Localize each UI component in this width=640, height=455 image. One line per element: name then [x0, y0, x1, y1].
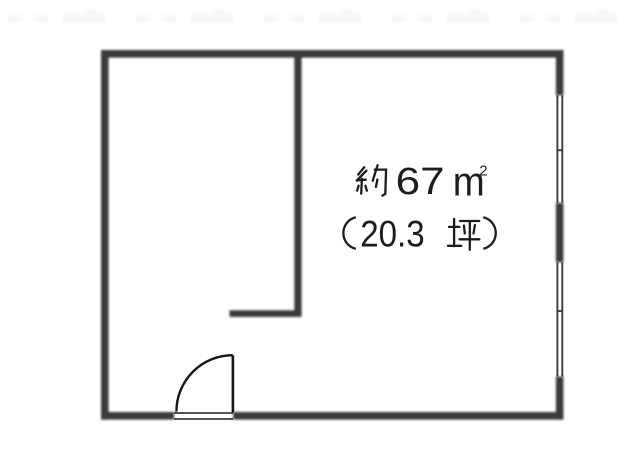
svg-text:2: 2 [479, 163, 487, 180]
svg-text:20.3: 20.3 [360, 213, 425, 255]
svg-text:67: 67 [396, 161, 445, 203]
